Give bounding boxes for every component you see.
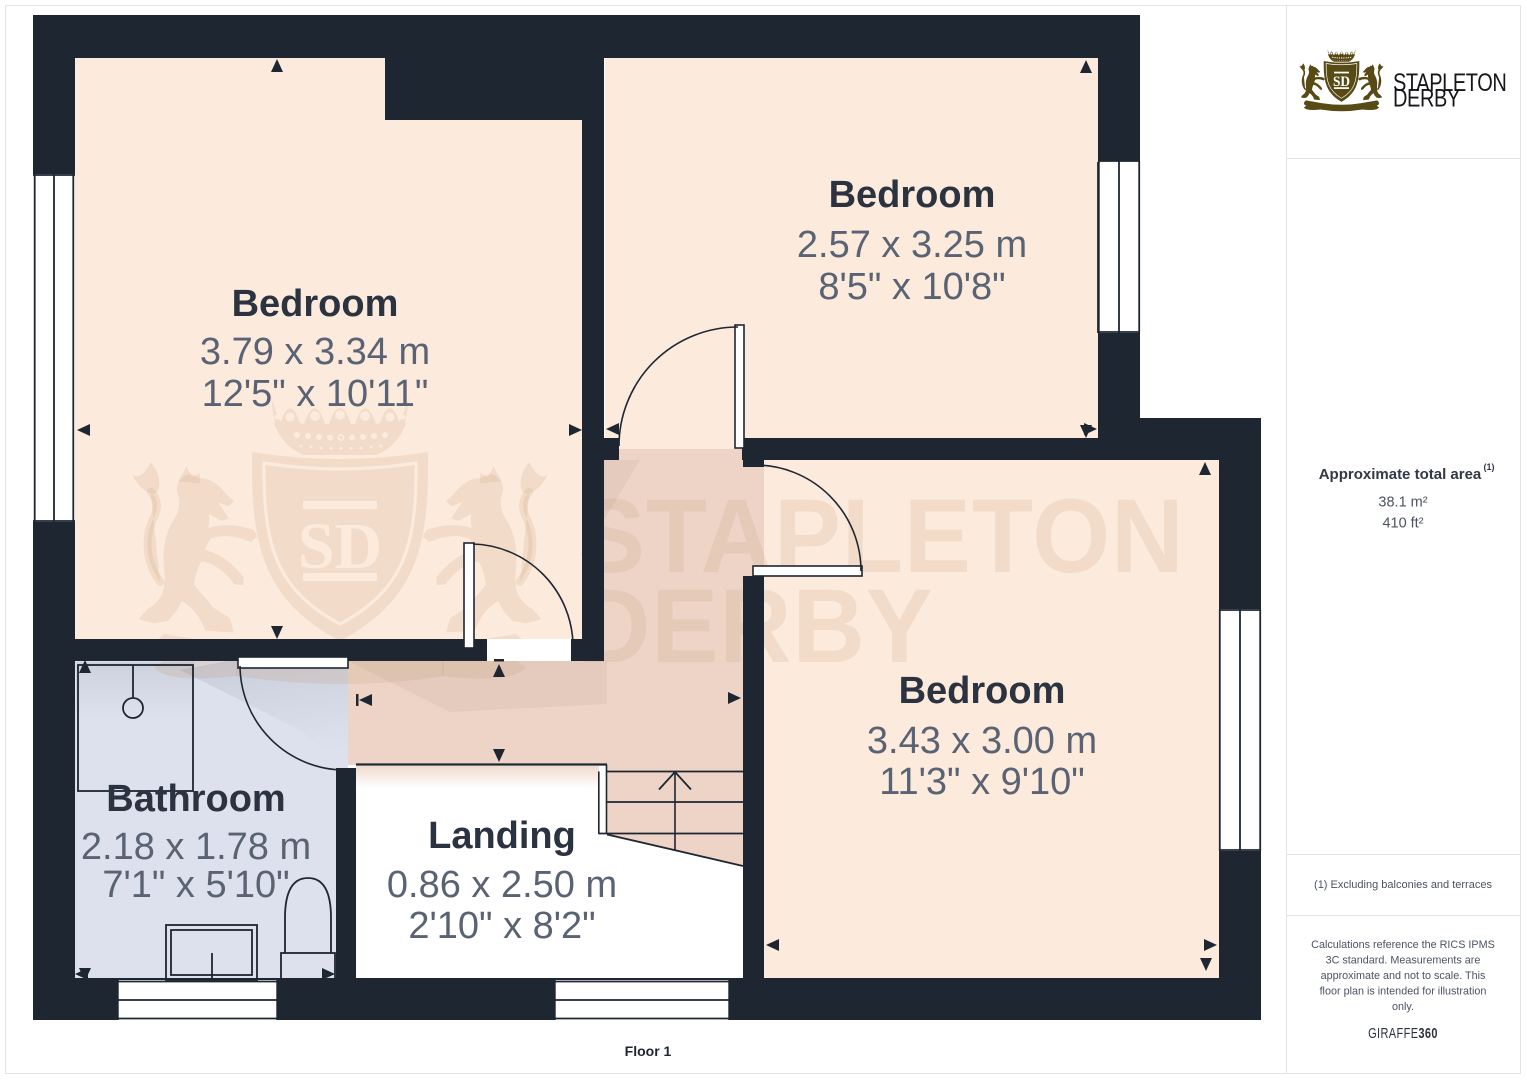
svg-text:Floor 1: Floor 1 xyxy=(625,1043,672,1059)
svg-text:3.43 x 3.00 m: 3.43 x 3.00 m xyxy=(867,720,1097,762)
svg-text:Bathroom: Bathroom xyxy=(106,778,285,820)
svg-text:DERBY: DERBY xyxy=(1393,84,1460,112)
svg-text:Bedroom: Bedroom xyxy=(232,283,399,325)
svg-text:3C standard. Measurements are: 3C standard. Measurements are xyxy=(1326,955,1481,967)
svg-text:approximate and not to scale.: approximate and not to scale. This xyxy=(1321,970,1486,982)
svg-text:2.18 x 1.78 m: 2.18 x 1.78 m xyxy=(81,826,311,868)
svg-text:38.1 m²: 38.1 m² xyxy=(1378,495,1427,511)
svg-text:11'3" x 9'10": 11'3" x 9'10" xyxy=(879,761,1085,803)
svg-text:2.57 x 3.25 m: 2.57 x 3.25 m xyxy=(797,224,1027,266)
svg-text:Approximate total area: Approximate total area xyxy=(1319,466,1482,483)
svg-text:(1) Excluding balconies and te: (1) Excluding balconies and terraces xyxy=(1314,879,1492,891)
svg-text:Bedroom: Bedroom xyxy=(829,174,996,216)
svg-text:8'5" x 10'8": 8'5" x 10'8" xyxy=(818,266,1005,308)
svg-text:12'5" x 10'11": 12'5" x 10'11" xyxy=(202,373,429,415)
svg-text:0.86 x 2.50 m: 0.86 x 2.50 m xyxy=(387,864,617,906)
svg-text:Bedroom: Bedroom xyxy=(899,670,1066,712)
svg-text:only.: only. xyxy=(1392,1001,1414,1013)
svg-text:Calculations reference the RIC: Calculations reference the RICS IPMS xyxy=(1311,939,1495,951)
svg-text:2'10" x 8'2": 2'10" x 8'2" xyxy=(408,905,595,947)
svg-text:GIRAFFE360: GIRAFFE360 xyxy=(1368,1024,1438,1041)
svg-text:7'1" x 5'10": 7'1" x 5'10" xyxy=(102,864,289,906)
svg-text:3.79 x 3.34 m: 3.79 x 3.34 m xyxy=(200,331,430,373)
svg-text:(1): (1) xyxy=(1484,462,1495,472)
svg-text:Landing: Landing xyxy=(428,815,576,857)
svg-text:410 ft²: 410 ft² xyxy=(1382,516,1423,532)
svg-text:floor plan is intended for ill: floor plan is intended for illustration xyxy=(1320,986,1487,998)
